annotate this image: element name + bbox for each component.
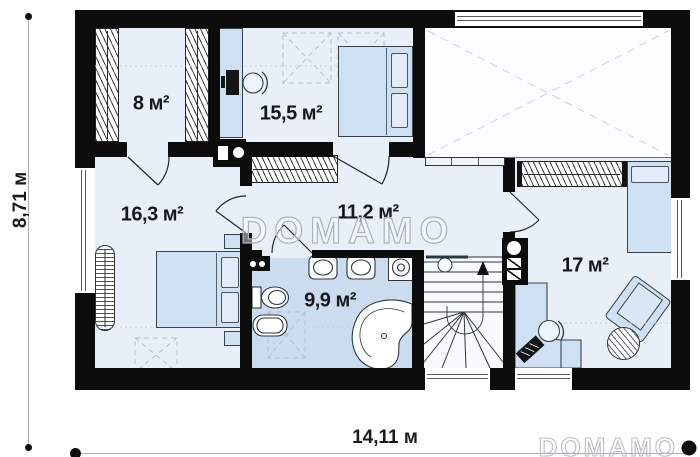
blanket-line (216, 253, 217, 326)
door-bathroom (272, 225, 312, 253)
window-glazing (427, 378, 488, 379)
vent-shaft-bathroom (246, 256, 270, 271)
vent-dot (259, 261, 265, 267)
stair-walk-line (447, 268, 483, 334)
wall-stairs-bedroomright (503, 285, 515, 368)
door-swings (128, 156, 539, 253)
room-label-bedroom-top: 15,5 м² (260, 103, 322, 126)
window-glazing (681, 200, 682, 278)
window-glazing (457, 16, 641, 17)
door-bedroom-right (510, 192, 539, 232)
bed-bedroom-left (156, 251, 243, 328)
door-bedroom-top (333, 156, 389, 184)
bedroom-top-chair (243, 72, 267, 94)
blanket-line (386, 48, 387, 135)
room-label-hall: 11,2 м² (337, 202, 398, 225)
window-glazing (85, 170, 86, 291)
window-bottom-stairs (425, 368, 490, 390)
chimney-shaft (213, 139, 246, 167)
window-glazing (677, 200, 678, 278)
toilet-tank (252, 287, 261, 308)
window-glazing (81, 170, 82, 291)
pillow (391, 53, 408, 88)
door-closet (128, 157, 169, 185)
stair-railing (425, 157, 505, 166)
window-glazing (517, 378, 570, 379)
room-label-closet: 8 м² (133, 93, 169, 116)
window-glazing (457, 20, 641, 21)
wall-closet-bedroom (209, 28, 220, 142)
bed-bedroom-right (627, 161, 673, 253)
pillow (221, 257, 239, 288)
wall-mid-horizontal (95, 142, 127, 157)
dimension-dot (70, 448, 81, 457)
window-right (671, 198, 690, 280)
floor-plan: 8 м² 15,5 м² 16,3 м² 11,2 м² 9,9 м² 17 м… (0, 0, 700, 457)
wall-bedroomleft-bath (240, 233, 252, 368)
shaft-duct (507, 258, 521, 268)
dimension-dot (25, 444, 32, 451)
shaft-circle (507, 241, 521, 255)
dimension-height-label: 8,71 м (10, 172, 32, 228)
wall-bath-stairs (412, 250, 424, 368)
bedroom-right-desk (515, 283, 581, 368)
vent-shaft-stairs (502, 238, 528, 285)
room-label-bedroom-right: 17 м² (562, 255, 609, 278)
door-bedroom-left (216, 196, 246, 233)
dimension-dot (25, 13, 32, 20)
bed-bedroom-top (338, 46, 413, 137)
washer-drum (393, 259, 410, 276)
staircase (424, 257, 503, 368)
pillow (391, 93, 408, 128)
pillow (221, 292, 239, 323)
railing-tick (478, 158, 479, 165)
chimney-flue-rect (218, 146, 228, 160)
stair-newel (438, 258, 452, 272)
office-chair (243, 73, 263, 93)
window-glazing (517, 374, 570, 375)
window-top-void (455, 12, 643, 26)
wall-bottom (75, 368, 690, 390)
window-bottom-bedroomright (515, 368, 572, 390)
room-label-bedroom-left: 16,3 м² (121, 204, 183, 227)
dimension-width-label: 14,11 м (352, 427, 418, 449)
window-left (75, 168, 95, 293)
railing-tick (451, 158, 452, 165)
wall-mid-horizontal (389, 142, 413, 157)
wall-void-left (413, 10, 425, 158)
room-label-bathroom: 9,9 м² (304, 290, 356, 313)
pillow (631, 166, 669, 183)
vent-dot (250, 261, 256, 267)
stair-up-arrow (477, 261, 489, 275)
void-cross (428, 31, 668, 155)
chimney-flue-circle (231, 145, 246, 160)
shaft-duct (507, 270, 521, 280)
wall-hall-bath (312, 250, 412, 258)
office-chair (539, 321, 560, 342)
window-glazing (427, 374, 488, 375)
